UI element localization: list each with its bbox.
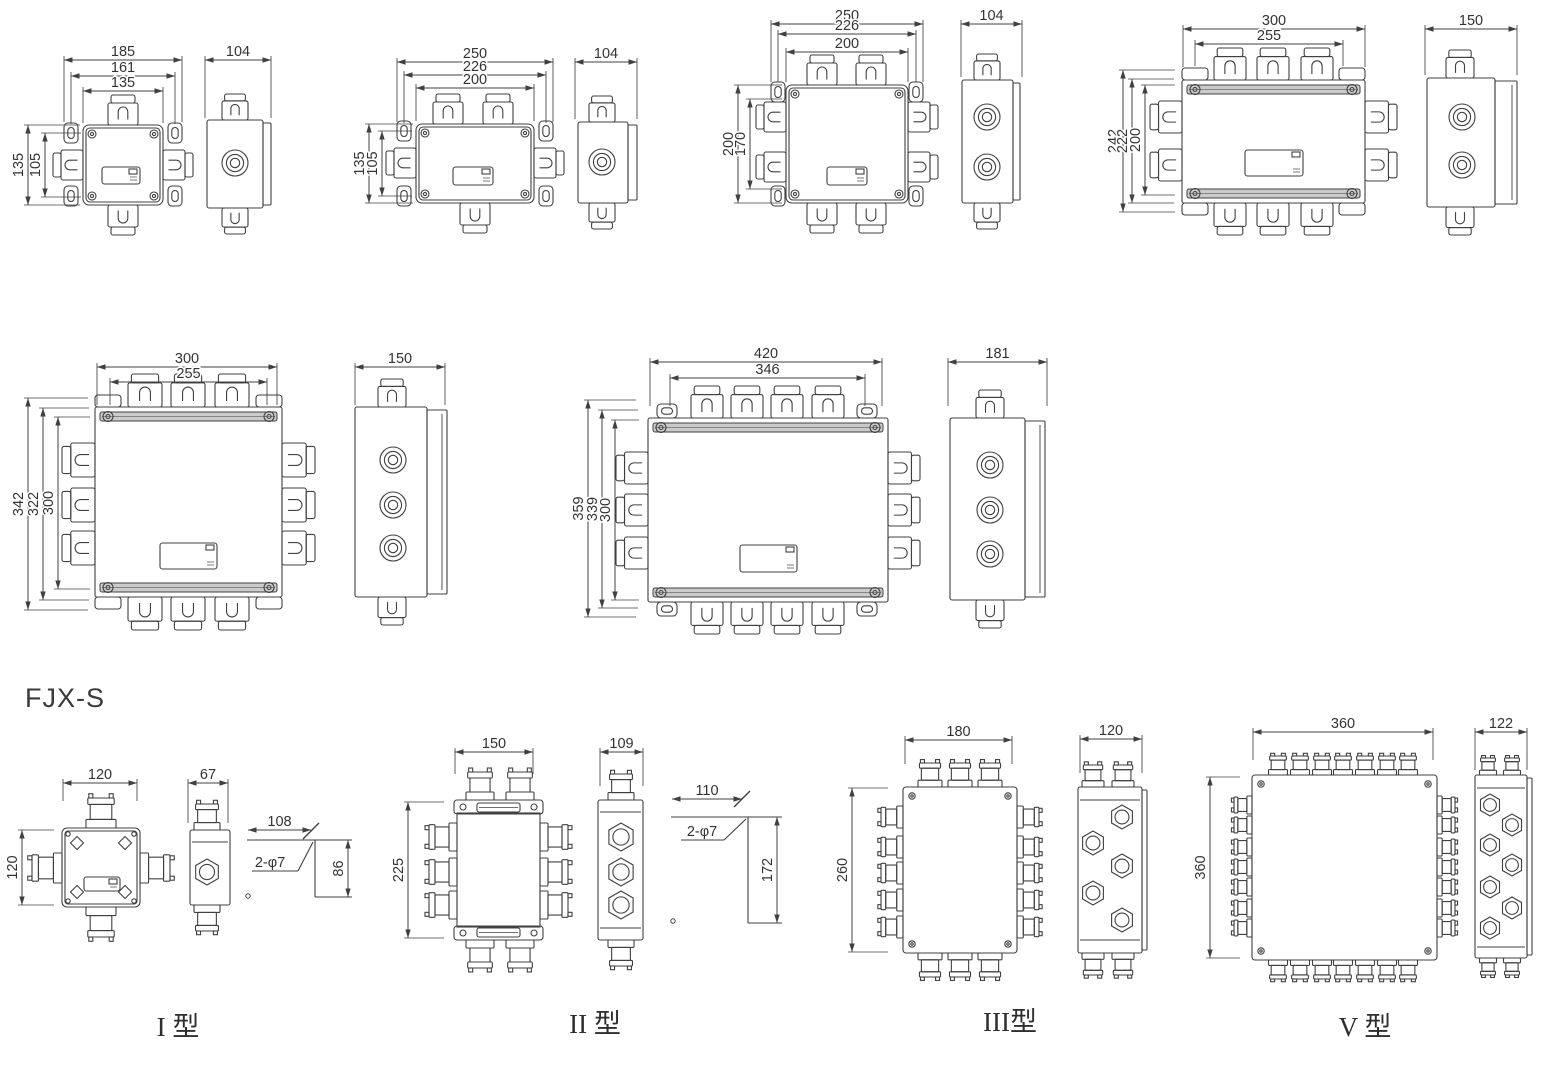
cable-entry [1082, 762, 1104, 787]
cable-entry [540, 823, 572, 851]
cable-entry [1150, 149, 1182, 181]
cable-entry [812, 386, 844, 418]
cable-entry [215, 374, 249, 407]
dimension: 150 [355, 351, 445, 405]
cable-entry [433, 94, 463, 124]
cable-entry [460, 203, 490, 233]
cable-entry [425, 891, 457, 919]
cable-entry [62, 531, 95, 565]
cable-entry [1437, 899, 1458, 917]
mounting-ear [857, 404, 877, 418]
cable-entry [948, 760, 972, 787]
cable-entry [86, 794, 116, 828]
dim-label: 346 [755, 362, 779, 378]
side-view [1078, 762, 1147, 978]
dimension: 104 [961, 8, 1022, 77]
nameplate [102, 167, 140, 184]
cable-entry [140, 853, 174, 883]
cable-gland [609, 823, 633, 851]
cable-entry [1480, 958, 1497, 977]
dim-label: 110 [695, 783, 718, 799]
cover-screw [421, 129, 429, 137]
cover-screw [150, 130, 158, 138]
dim-label: 104 [594, 46, 618, 62]
dimension: 360 [1253, 716, 1433, 760]
cable-entry [1301, 203, 1333, 235]
cable-entry [128, 374, 162, 407]
drawing-d6: 420346359339300181 [571, 346, 1047, 634]
mounting-ear [168, 186, 182, 206]
cable-entry [1356, 753, 1375, 775]
cable-entry [976, 600, 1004, 628]
dimension: 109 [600, 736, 643, 786]
cable-entry [108, 95, 138, 125]
dimension: 150 [455, 736, 533, 774]
cable-entry [1017, 836, 1042, 858]
rib-strip [653, 423, 883, 432]
drawing-t4: 360360122V 型 [1193, 716, 1532, 1042]
cable-entry [978, 953, 1002, 980]
side-view [1475, 756, 1532, 978]
dimension: 226 [404, 59, 546, 123]
cable-entry [731, 602, 763, 634]
cable-entry [976, 390, 1004, 418]
type-label: II 型 [569, 1009, 621, 1039]
cable-gland [222, 150, 248, 176]
dim-label: 120 [5, 855, 21, 879]
cable-entry [616, 537, 648, 569]
front-view [425, 768, 572, 972]
cable-entry [1446, 207, 1474, 235]
drawing-d2: 250226200135105104 [352, 46, 637, 233]
dimension: 86 [331, 840, 351, 897]
dim-label: 180 [946, 724, 970, 740]
dimension: 180 [905, 724, 1012, 764]
cable-entry [1082, 953, 1104, 978]
cable-gland [380, 535, 406, 561]
dim-label: 181 [985, 346, 1009, 362]
dim-label: 226 [835, 18, 859, 34]
dimension: 104 [205, 44, 271, 118]
mounting-ear [857, 602, 877, 616]
cable-entry [1231, 816, 1252, 834]
dim-label: 260 [835, 858, 851, 882]
cable-entry [128, 597, 162, 630]
nameplate [84, 877, 120, 891]
cable-entry [856, 203, 886, 233]
dim-label: 86 [331, 860, 347, 876]
cable-entry [1365, 101, 1397, 133]
dimension: 120 [63, 767, 137, 801]
cable-gland [609, 858, 633, 886]
dim-label: 150 [1459, 13, 1483, 29]
dim-label: 135 [111, 75, 135, 91]
cable-gland [1503, 854, 1522, 876]
rib-strip [100, 583, 277, 592]
dim-label: 322 [26, 492, 42, 516]
cable-entry [466, 940, 494, 972]
cable-entry [918, 953, 942, 980]
cable-entry [1334, 753, 1353, 775]
dim-label: 255 [1257, 28, 1281, 44]
cable-entry [616, 452, 648, 484]
cable-entry [691, 602, 723, 634]
rib-strip [100, 412, 277, 421]
cable-gland [974, 154, 1000, 180]
type-label: V 型 [1339, 1012, 1392, 1042]
cable-entry [425, 823, 457, 851]
mounting-ear [539, 186, 553, 206]
cable-entry [616, 494, 648, 526]
drawing-d1: 185161135135105104 [11, 44, 271, 235]
cable-gland [609, 891, 633, 919]
cable-gland [1112, 908, 1133, 932]
dimension: 200 [721, 85, 782, 203]
cable-gland [196, 859, 219, 885]
cable-entry [194, 905, 220, 935]
dim-label: 120 [1099, 723, 1123, 739]
nameplate [453, 167, 493, 185]
cable-entry [378, 597, 406, 625]
nameplate [1245, 150, 1303, 176]
cable-gland [1503, 897, 1522, 919]
dimension: 200 [416, 72, 534, 121]
cable-entry [215, 597, 249, 630]
cable-entry [1017, 806, 1042, 828]
cover-screw [521, 190, 529, 198]
cable-entry [62, 443, 95, 477]
cable-entry [888, 537, 920, 569]
dimension: 104 [575, 46, 637, 119]
mounting-ear [539, 121, 553, 141]
cable-entry [534, 148, 564, 178]
dim-label: 104 [979, 8, 1003, 24]
cable-entry [878, 836, 903, 858]
cable-entry [974, 54, 1000, 80]
dimension: 110 [672, 783, 742, 802]
cable-gland [974, 104, 1000, 130]
cable-entry [1378, 753, 1397, 775]
dimensions: 250226200200170104 [721, 8, 1022, 203]
cable-gland [977, 541, 1003, 567]
drawing-d4: 300255242222200150 [1106, 13, 1517, 235]
dim-label: 105 [365, 151, 381, 175]
cover-screw [521, 129, 529, 137]
cable-entry [466, 768, 494, 800]
side-view [207, 94, 271, 234]
cable-entry [1150, 101, 1182, 133]
cable-entry [1399, 753, 1418, 775]
cable-entry [608, 940, 634, 970]
cable-entry [608, 770, 634, 800]
cable-entry [1356, 960, 1375, 982]
cable-entry [1291, 753, 1310, 775]
dimensions: 300255242222200150 [1106, 13, 1517, 212]
cable-entry [506, 768, 534, 800]
cable-gland [1449, 104, 1475, 130]
side-view [1427, 50, 1517, 235]
dim-label: 185 [111, 44, 135, 60]
cable-entry [1017, 889, 1042, 911]
cable-entry [1257, 203, 1289, 235]
cover-screw [88, 192, 96, 200]
dim-label: 172 [760, 858, 776, 882]
cable-gland [977, 497, 1003, 523]
cable-entry [1437, 838, 1458, 856]
cable-gland [1112, 854, 1133, 878]
dim-label: 105 [28, 153, 44, 177]
cable-entry [878, 806, 903, 828]
cable-entry [1334, 960, 1353, 982]
cable-entry [282, 488, 315, 522]
dimension: 67 [188, 767, 228, 823]
dimensions: 300255342322300150 [11, 351, 445, 610]
dim-label: 360 [1193, 855, 1209, 879]
dim-label: 120 [88, 767, 112, 783]
cable-entry [1112, 953, 1134, 978]
cover-screw [791, 190, 799, 198]
cable-entry [1291, 960, 1310, 982]
drawing-t3: 180260120III型 [835, 723, 1147, 1037]
side-view [355, 379, 447, 625]
mounting-ear [168, 123, 182, 143]
cable-entry [974, 203, 1000, 229]
cable-entry [918, 760, 942, 787]
side-view [950, 390, 1045, 628]
dim-label: 108 [267, 814, 291, 830]
rib-strip [653, 588, 883, 597]
cable-entry [1437, 878, 1458, 896]
dim-label: 150 [482, 736, 506, 752]
cable-entry [731, 386, 763, 418]
cable-entry [1017, 916, 1042, 938]
dim-label: 420 [754, 346, 778, 362]
cable-entry [1231, 838, 1252, 856]
cable-gland [1083, 831, 1104, 855]
cable-gland [380, 492, 406, 518]
dim-label: 200 [835, 36, 859, 52]
drawing-sheet: FJX-S 1851611351351051042502262001351051… [0, 0, 1550, 1070]
cable-entry [1231, 858, 1252, 876]
cable-entry [908, 152, 938, 182]
cable-entry [222, 208, 248, 234]
cable-entry [1231, 919, 1252, 937]
cable-gland [1083, 881, 1104, 905]
dimension: 225 [391, 802, 444, 938]
cable-gland [1503, 814, 1522, 836]
type-label: III型 [983, 1007, 1037, 1037]
cable-entry [1399, 960, 1418, 982]
dimension: 200 [786, 36, 908, 82]
cable-entry [856, 55, 886, 85]
cable-entry [1437, 816, 1458, 834]
cable-entry [756, 152, 786, 182]
front-view [878, 760, 1042, 981]
dim-label: 200 [1128, 128, 1144, 152]
cable-entry [1257, 48, 1289, 80]
cable-entry [948, 953, 972, 980]
cable-gland [1112, 805, 1133, 829]
dimension: 108 [248, 814, 311, 833]
cable-entry [1313, 960, 1332, 982]
dim-label: 360 [1331, 716, 1355, 732]
cable-entry [1480, 756, 1497, 775]
dim-label: 200 [463, 72, 487, 88]
cover-screw [150, 192, 158, 200]
cable-entry [1504, 958, 1521, 977]
cable-entry [506, 940, 534, 972]
cable-entry [1269, 960, 1288, 982]
cable-entry [978, 760, 1002, 787]
dim-label: 300 [598, 498, 614, 522]
dimension: 255 [110, 366, 267, 405]
dim-label: 300 [41, 491, 57, 515]
cable-entry [171, 597, 205, 630]
cable-entry [62, 488, 95, 522]
cable-entry [222, 94, 248, 120]
cable-entry [282, 443, 315, 477]
cable-entry [1269, 753, 1288, 775]
dim-label: 170 [733, 132, 749, 156]
cable-entry [1504, 756, 1521, 775]
cable-gland [1481, 917, 1500, 939]
dim-label: 300 [175, 351, 199, 367]
cable-entry [1214, 203, 1246, 235]
cable-entry [1437, 919, 1458, 937]
dimension: 255 [1195, 28, 1343, 66]
cable-entry [163, 150, 193, 180]
cable-gland [1449, 152, 1475, 178]
dim-label: 225 [391, 858, 407, 882]
cable-entry [878, 862, 903, 884]
nameplate [827, 167, 867, 185]
dimensions: 420346359339300181 [571, 346, 1047, 617]
dim-label: 135 [11, 153, 27, 177]
dimension-drawings: 1851611351351051042502262001351051042502… [0, 0, 1550, 1070]
cable-entry [1017, 862, 1042, 884]
cover-screw [895, 190, 903, 198]
cable-entry [812, 602, 844, 634]
cable-entry [908, 102, 938, 132]
cable-entry [589, 96, 615, 122]
cable-entry [771, 602, 803, 634]
cable-entry [756, 102, 786, 132]
cable-entry [1378, 960, 1397, 982]
cable-entry [28, 853, 62, 883]
type-label: I 型 [157, 1012, 200, 1042]
cable-entry [483, 94, 513, 124]
hole-callout: 2-φ7 [255, 855, 285, 871]
cable-entry [425, 858, 457, 886]
front-view [62, 374, 315, 630]
mounting-ear [909, 186, 923, 206]
cable-entry [888, 494, 920, 526]
dim-label: 67 [200, 767, 216, 783]
front-view [1231, 753, 1457, 981]
dim-label: 342 [11, 492, 27, 516]
drawing-d5: 300255342322300150 [11, 351, 447, 630]
cable-entry [1112, 762, 1134, 787]
mounting-hole-diagram: 1082-φ786 [246, 814, 352, 898]
cable-gland [977, 452, 1003, 478]
dim-label: 255 [176, 366, 200, 382]
side-view [190, 800, 230, 934]
cable-entry [691, 386, 723, 418]
cover-screw [791, 90, 799, 98]
cable-gland [589, 149, 615, 175]
mounting-hole-diagram: 1102-φ7172 [671, 783, 782, 923]
cable-gland [1481, 876, 1500, 898]
dimension: 172 [760, 817, 780, 923]
cable-entry [386, 148, 416, 178]
front-view [1150, 48, 1397, 235]
cover-screw [421, 190, 429, 198]
front-view [616, 386, 920, 634]
cable-entry [878, 889, 903, 911]
front-view [386, 94, 564, 233]
dimension: 346 [670, 362, 865, 406]
cable-entry [1313, 753, 1332, 775]
cable-entry [194, 800, 220, 830]
cable-entry [86, 907, 116, 941]
dimension: 120 [5, 830, 54, 905]
front-view [53, 95, 193, 235]
cable-entry [1437, 796, 1458, 814]
cover-screw [88, 130, 96, 138]
drawing-t2: 1502251091102-φ7172II 型 [391, 736, 782, 1039]
cable-entry [540, 858, 572, 886]
hole-callout: 2-φ7 [687, 824, 717, 840]
cable-entry [1231, 796, 1252, 814]
dim-label: 150 [388, 351, 412, 367]
front-view [756, 55, 938, 233]
cable-entry [771, 386, 803, 418]
dim-label: 161 [111, 60, 135, 76]
dim-label: 104 [226, 44, 250, 60]
cable-entry [108, 205, 138, 235]
nameplate [740, 545, 797, 572]
nameplate [160, 543, 217, 569]
cable-entry [807, 55, 837, 85]
cable-entry [1365, 149, 1397, 181]
dim-label: 109 [609, 736, 633, 752]
side-view [578, 96, 637, 229]
side-view [962, 54, 1020, 229]
cable-entry [589, 203, 615, 229]
dim-label: 300 [1262, 13, 1286, 29]
mounting-ear [657, 404, 677, 418]
side-view [598, 770, 643, 969]
dimension: 135 [83, 75, 163, 123]
cable-entry [807, 203, 837, 233]
dimension: 150 [1425, 13, 1517, 75]
cable-entry [1231, 878, 1252, 896]
cable-entry [540, 891, 572, 919]
cable-entry [282, 531, 315, 565]
cable-entry [1231, 899, 1252, 917]
mounting-ear [64, 186, 78, 206]
cable-entry [1301, 48, 1333, 80]
cable-entry [1446, 50, 1474, 78]
cable-entry [53, 150, 83, 180]
dim-label: 122 [1489, 716, 1513, 732]
front-view [28, 794, 175, 942]
cable-gland [1481, 794, 1500, 816]
cable-entry [1437, 858, 1458, 876]
dimension: 300 [598, 420, 639, 600]
mounting-ear [657, 602, 677, 616]
drawing-d3: 250226200200170104 [721, 8, 1022, 233]
